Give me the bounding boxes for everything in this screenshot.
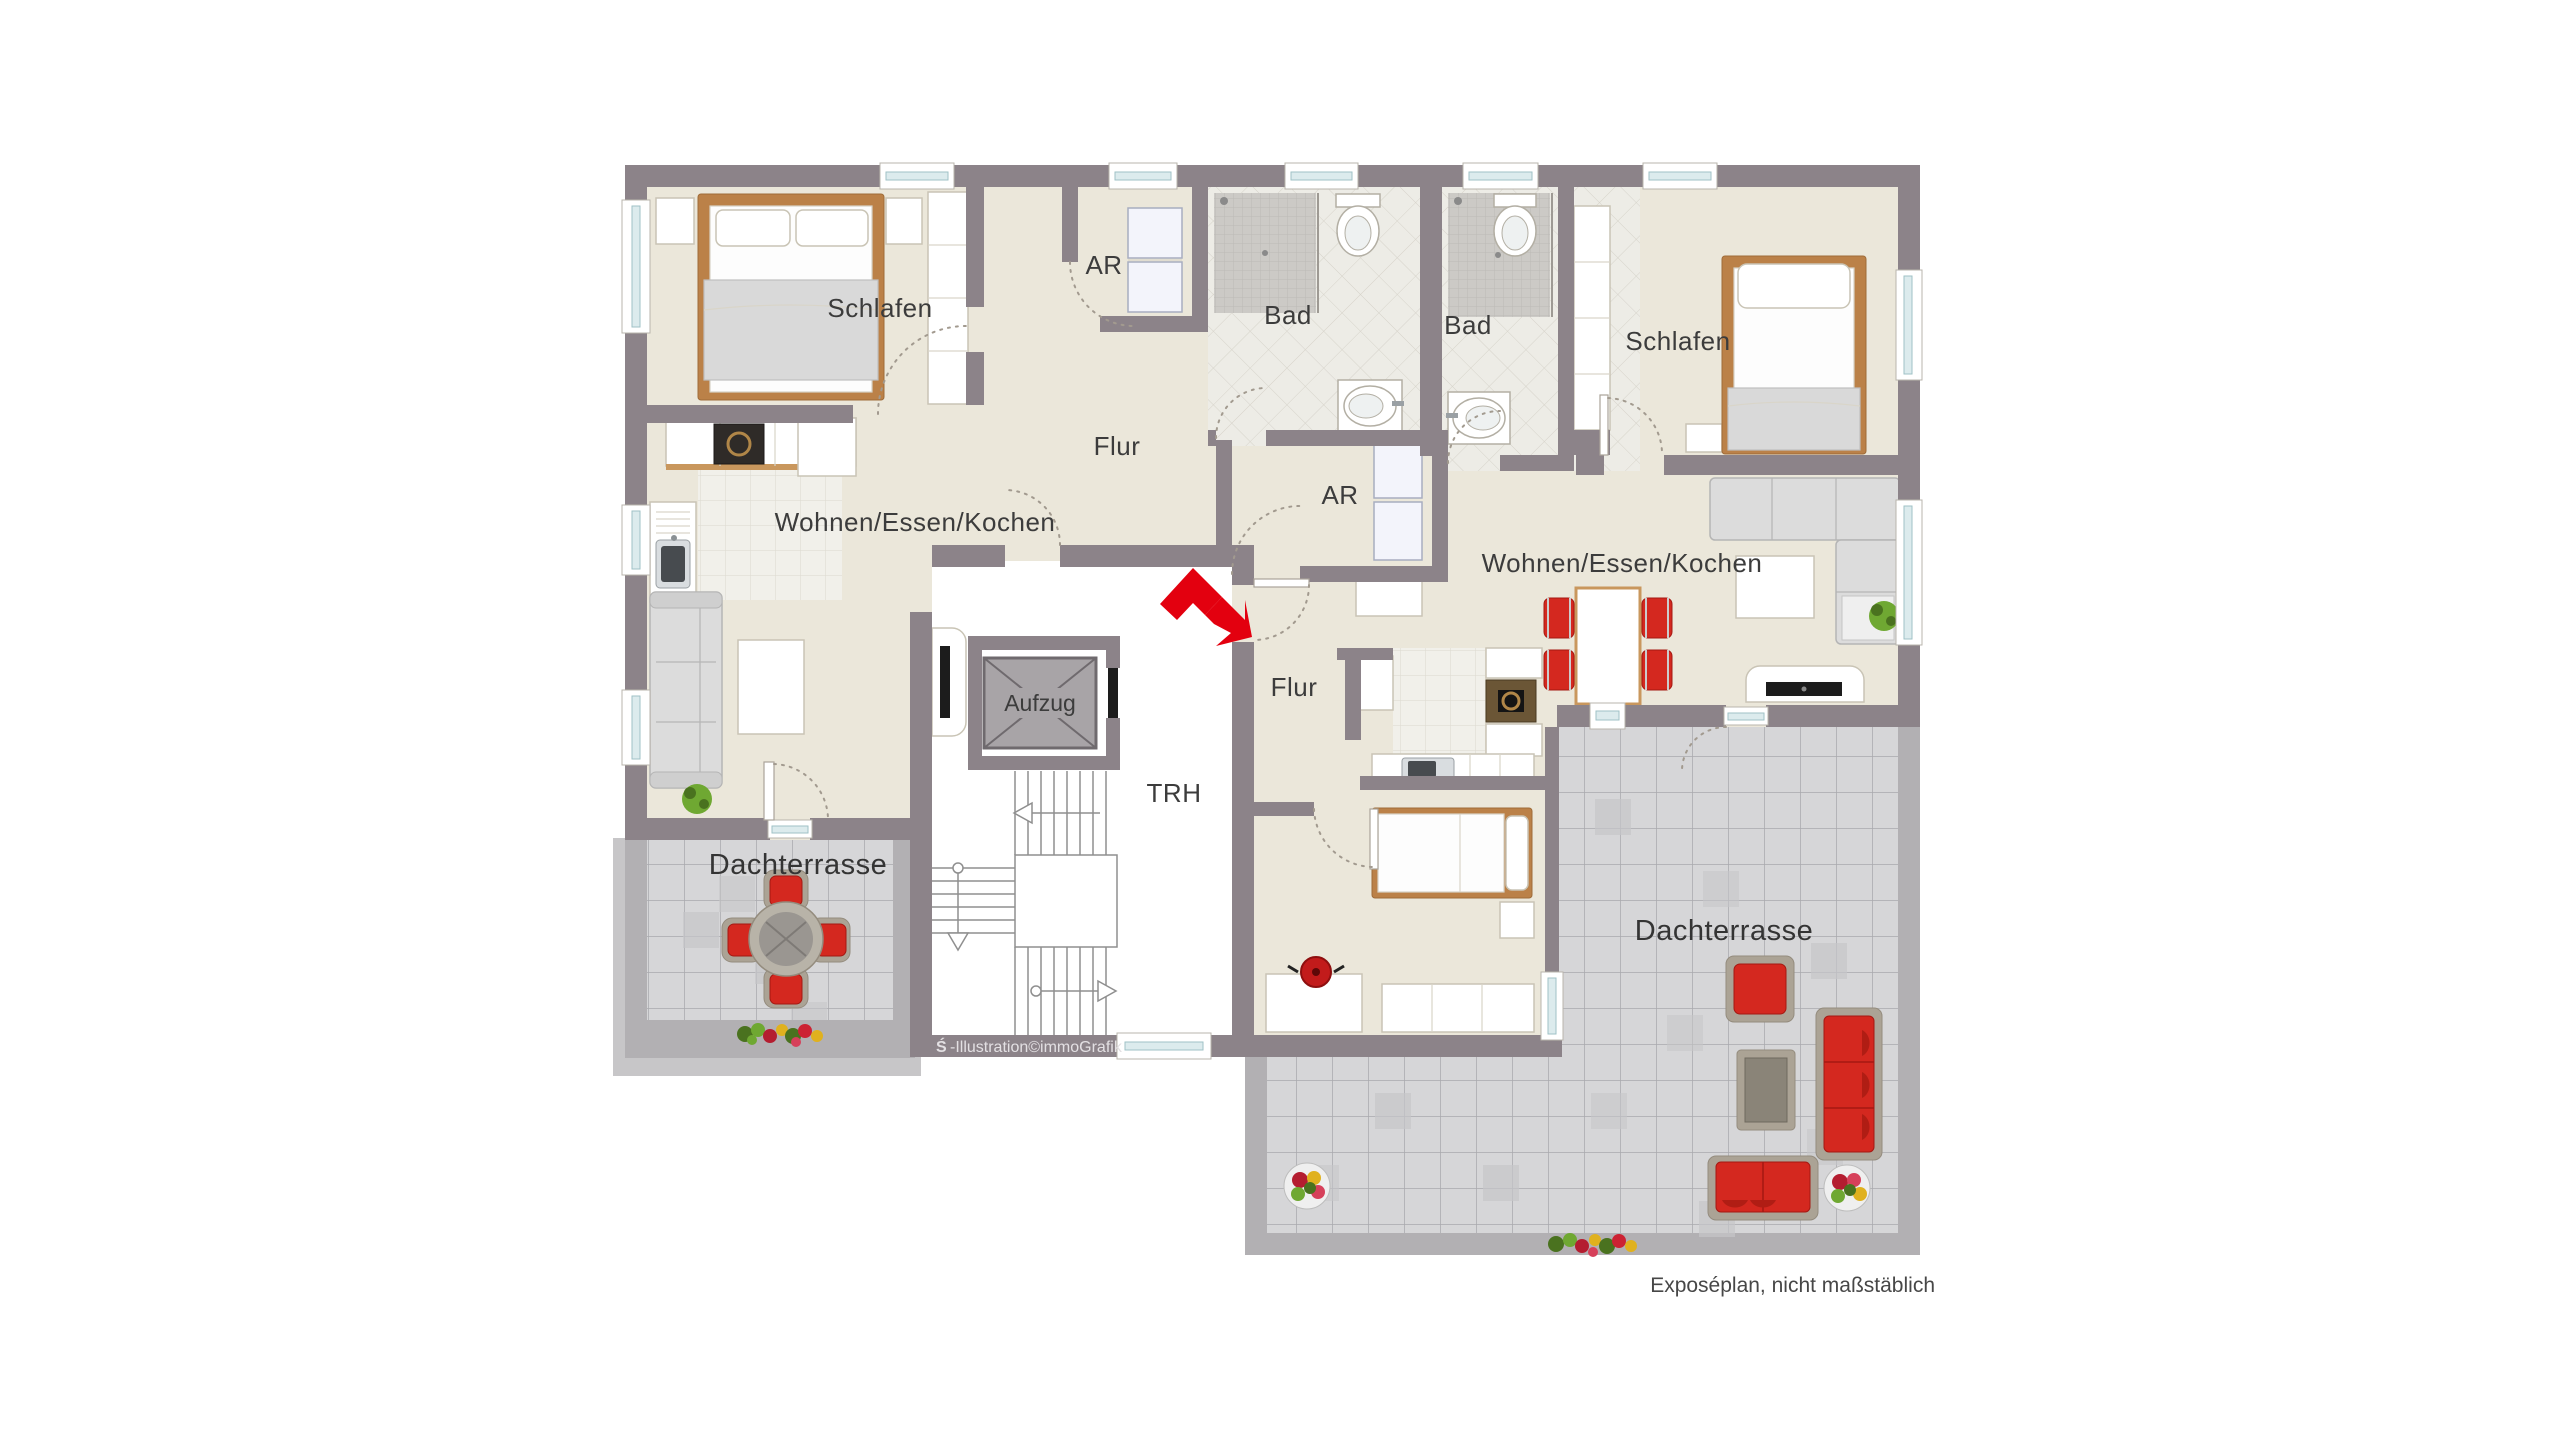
toilet-left	[1336, 194, 1380, 256]
double-bed-right	[1722, 256, 1866, 454]
floorplan-svg: Aufzug	[0, 0, 2560, 1454]
window-left-2	[622, 505, 650, 575]
label-trh: TRH	[1147, 778, 1202, 808]
disclaimer-text: Exposéplan, nicht maßstäblich	[1650, 1274, 1935, 1297]
single-bed-right	[1372, 808, 1532, 898]
label-wohnen-right: Wohnen/Essen/Kochen	[1482, 548, 1763, 578]
terrace-door-left-glass	[768, 820, 812, 838]
label-bad-left: Bad	[1264, 300, 1312, 330]
storage-ar-left-furniture	[1128, 208, 1182, 312]
kitchen-floor-right	[1393, 648, 1485, 760]
label-flur-left: Flur	[1094, 431, 1141, 461]
label-wohnen-left: Wohnen/Essen/Kochen	[775, 507, 1056, 537]
flower-pot-center	[1284, 1163, 1330, 1209]
flower-pot-right	[1824, 1165, 1870, 1211]
sofa-left	[650, 592, 722, 788]
window-top-1	[880, 163, 954, 189]
window-top-5	[1643, 163, 1717, 189]
tv-sideboard-right	[1746, 666, 1864, 702]
window-bottom-trh	[1117, 1033, 1211, 1059]
window-left-1	[622, 200, 650, 333]
window-top-2	[1109, 163, 1177, 189]
sideboard-right	[1382, 984, 1534, 1032]
plant-right	[1869, 601, 1899, 631]
label-dachterrasse-right: Dachterrasse	[1635, 915, 1813, 947]
label-ar-left: AR	[1085, 250, 1122, 280]
plant-left	[682, 784, 712, 814]
floorplan-page: Aufzug	[0, 0, 2560, 1454]
window-wing-east	[1541, 972, 1563, 1040]
wardrobe-left	[928, 192, 968, 404]
terrace-door-right-glass	[1724, 707, 1768, 725]
label-aufzug: Aufzug	[1004, 690, 1076, 716]
toilet-right	[1494, 194, 1536, 256]
window-right-2	[1896, 500, 1922, 645]
label-ar-right: AR	[1321, 480, 1358, 510]
watermark-text: -Illustration©immoGrafik	[950, 1039, 1123, 1056]
window-left-3	[622, 690, 650, 765]
window-top-4	[1463, 163, 1538, 189]
label-schlafen-left: Schlafen	[827, 293, 932, 323]
label-flur-right: Flur	[1271, 672, 1318, 702]
window-bottom-right-wing	[1590, 703, 1625, 729]
window-top-3	[1285, 163, 1358, 189]
elevator-door	[1108, 668, 1118, 718]
label-dachterrasse-left: Dachterrasse	[709, 849, 887, 881]
washbasin-left	[1338, 380, 1404, 432]
label-bad-right: Bad	[1444, 310, 1492, 340]
window-right-1	[1896, 270, 1922, 380]
label-schlafen-right: Schlafen	[1625, 326, 1730, 356]
coffee-table-left	[738, 640, 804, 734]
sparkasse-logo-icon: Ś	[936, 1037, 947, 1056]
tv-sideboard-left	[932, 628, 966, 736]
washbasin-right	[1446, 392, 1510, 444]
watermark: Ś -Illustration©immoGrafik	[936, 1037, 1123, 1056]
